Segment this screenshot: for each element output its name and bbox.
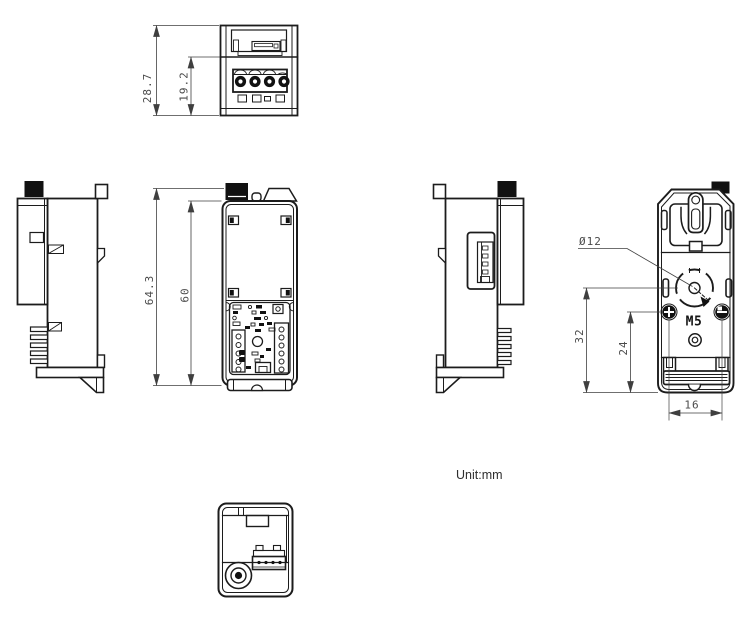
din-hook-right — [439, 249, 446, 264]
dim-front-overall: 64.3 — [143, 275, 156, 306]
din-top-tab-right — [434, 185, 446, 199]
dim-top-terminal: 19.2 — [178, 71, 191, 102]
bottom-view — [219, 504, 293, 597]
thread-label: M5 — [686, 315, 703, 330]
side-pins — [498, 329, 512, 365]
right-side-view — [434, 181, 524, 393]
dim-hole-diameter: Ø12 — [579, 235, 602, 248]
dimension-drawing: 28.7 19.2 — [0, 0, 755, 618]
top-tab-front — [264, 189, 297, 202]
din-foot-right — [437, 378, 461, 393]
engineering-drawing-sheet: 28.7 19.2 — [0, 0, 755, 618]
top-view — [221, 26, 298, 116]
front-view — [223, 183, 298, 391]
din-clip-slider — [689, 193, 703, 233]
power-connector-front — [226, 183, 249, 200]
dim-front-body: 60 — [179, 287, 192, 302]
dim-top-overall: 28.7 — [141, 73, 154, 104]
din-top-tab — [96, 185, 108, 199]
din-hook — [98, 249, 105, 264]
din-foot — [80, 378, 104, 393]
left-side-view — [18, 181, 108, 393]
unit-note: Unit:mm — [456, 468, 503, 482]
power-connector-side — [25, 181, 44, 197]
dim-screw-spacing: 16 — [684, 399, 699, 412]
dim-hole-to-bottom: 32 — [573, 328, 586, 343]
m5-screw-right — [714, 304, 730, 320]
side-fins — [31, 327, 48, 364]
dim-screws-to-bottom: 24 — [617, 340, 630, 355]
power-connector-side-right — [498, 181, 517, 197]
top-view-dimensions: 28.7 19.2 — [141, 26, 220, 116]
m5-screw-left — [661, 304, 677, 320]
front-view-dimensions: 64.3 60 — [143, 189, 224, 386]
